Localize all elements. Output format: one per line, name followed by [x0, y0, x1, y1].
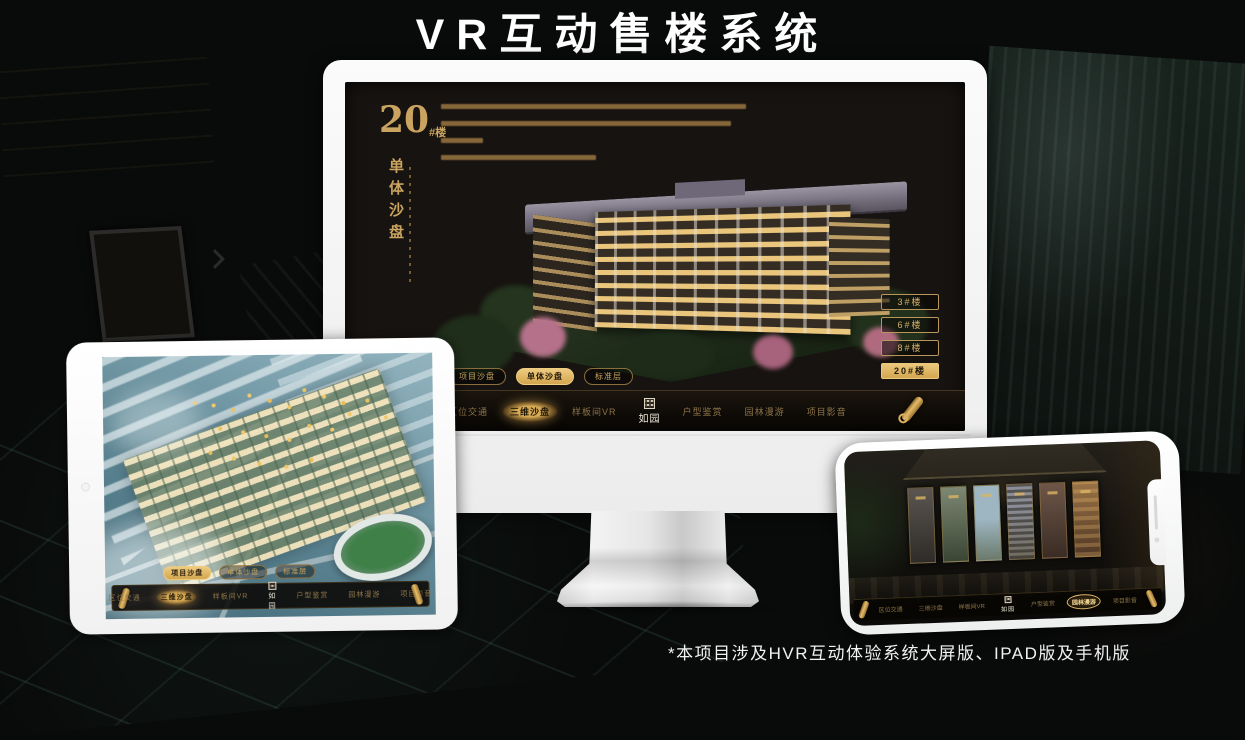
phone-speaker-icon	[1154, 495, 1158, 529]
tab-standard-floor[interactable]: 标准层	[584, 368, 633, 385]
building-3d-render[interactable]	[425, 167, 915, 387]
nav-item-project-media[interactable]: 项目影音	[1109, 593, 1141, 607]
seal-icon	[644, 398, 655, 409]
heading-subtitle-vertical: 单体沙盘	[385, 158, 406, 246]
gallery-panel-courtyard[interactable]	[907, 487, 936, 564]
tab-project-sandtable[interactable]: 项目沙盘	[448, 368, 506, 385]
page-title: VR互动售楼系统	[0, 0, 1245, 62]
brand-logo-text: 如园	[268, 590, 276, 610]
nav-item-garden-roam[interactable]: 园林漫游	[738, 401, 792, 422]
brand-logo: 如园	[268, 581, 276, 610]
tree	[623, 332, 715, 378]
intro-line	[441, 138, 483, 143]
tab-project-sandtable-active[interactable]: 项目沙盘	[163, 566, 211, 581]
pink-blossom-tree	[520, 317, 566, 357]
tablet-navbar: 区位交通 三维沙盘 样板间VR 如园 户型鉴赏 园林漫游 项目影音	[111, 581, 429, 611]
tablet-device: 项目沙盘 单体沙盘 标准层 区位交通 三维沙盘 样板间VR 如园 户型鉴赏 园林…	[66, 337, 458, 634]
nav-item-unit-appreciation[interactable]: 户型鉴赏	[292, 587, 332, 604]
gallery-panel-sky-view[interactable]	[973, 484, 1002, 561]
tablet-screen: 项目沙盘 单体沙盘 标准层 区位交通 三维沙盘 样板间VR 如园 户型鉴赏 园林…	[102, 353, 436, 620]
floor-button-group: 3#楼 6#楼 8#楼 20#楼	[881, 294, 939, 386]
background-picture-frame	[89, 226, 195, 342]
gallery-panel-garden[interactable]	[940, 486, 969, 563]
background-render-collage	[961, 46, 1245, 475]
tab-standard-floor[interactable]: 标准层	[275, 564, 315, 579]
gallery-panel-interior[interactable]	[1039, 482, 1068, 559]
phone-notch	[1147, 479, 1166, 566]
brand-logo: 如园	[639, 398, 661, 425]
floor-button-6[interactable]: 6#楼	[881, 317, 939, 333]
intro-line	[441, 155, 596, 160]
nav-item-garden-roam-active[interactable]: 园林漫游	[1067, 594, 1102, 610]
floor-button-3[interactable]: 3#楼	[881, 294, 939, 310]
phone-device: 区位交通 三维沙盘 样板间VR 如园 户型鉴赏 园林漫游 项目影音	[834, 430, 1185, 635]
monitor-stand-shadow	[520, 601, 800, 617]
building-number-heading: 20	[379, 102, 429, 138]
gallery-panel-building[interactable]	[1006, 483, 1035, 560]
heading-dotted-divider	[409, 162, 411, 282]
floor-button-20-active[interactable]: 20#楼	[881, 363, 939, 379]
tablet-camera-icon	[81, 482, 90, 491]
phone-camera-icon	[1154, 537, 1159, 542]
footnote-text: *本项目涉及HVR互动体验系统大屏版、IPAD版及手机版	[668, 639, 1131, 664]
nav-item-garden-roam[interactable]: 园林漫游	[344, 586, 384, 603]
scroll-roll	[900, 395, 924, 423]
building-left-face	[533, 215, 597, 332]
monitor-sub-tabs: 项目沙盘 单体沙盘 标准层	[448, 368, 633, 385]
intro-line	[441, 104, 746, 109]
nav-item-showroom-vr[interactable]: 样板间VR	[565, 401, 624, 422]
nav-item-location-traffic[interactable]: 区位交通	[874, 602, 906, 616]
scroll-icon-left[interactable]	[858, 600, 870, 619]
nav-item-3d-sandtable[interactable]: 三维沙盘	[914, 600, 946, 614]
brand-logo-text: 如园	[639, 410, 661, 425]
pink-blossom-tree	[753, 335, 793, 369]
scroll-icon-right[interactable]	[1145, 589, 1158, 608]
tab-single-sandtable[interactable]: 单体沙盘	[219, 565, 267, 580]
monitor-stand	[557, 511, 759, 607]
floor-button-8[interactable]: 8#楼	[881, 340, 939, 356]
scroll-icon[interactable]	[901, 395, 923, 427]
seal-icon	[1004, 596, 1011, 603]
building-front-face	[595, 204, 851, 334]
nav-item-unit-appreciation[interactable]: 户型鉴赏	[1027, 596, 1059, 610]
nav-item-showroom-vr[interactable]: 样板间VR	[954, 599, 989, 613]
gallery-panel-shelves[interactable]	[1072, 481, 1101, 558]
tablet-sub-tabs: 项目沙盘 单体沙盘 标准层	[163, 564, 315, 580]
nav-item-location-traffic[interactable]: 区位交通	[105, 590, 145, 607]
nav-item-project-media[interactable]: 项目影音	[800, 401, 854, 422]
nav-item-3d-sandtable-active[interactable]: 三维沙盘	[503, 401, 557, 422]
tab-single-sandtable-active[interactable]: 单体沙盘	[516, 368, 574, 385]
nav-item-unit-appreciation[interactable]: 户型鉴赏	[676, 401, 730, 422]
brand-logo: 如园	[1001, 596, 1016, 614]
intro-line	[441, 121, 731, 126]
gallery-panels	[907, 481, 1101, 564]
brand-logo-text: 如园	[1001, 604, 1015, 614]
seal-icon	[268, 581, 276, 589]
nav-item-showroom-vr[interactable]: 样板间VR	[209, 588, 253, 605]
chevron-right-icon	[205, 249, 225, 269]
intro-paragraph-blurred	[441, 104, 746, 172]
phone-screen: 区位交通 三维沙盘 样板间VR 如园 户型鉴赏 园林漫游 项目影音	[844, 440, 1166, 626]
nav-item-3d-sandtable-active[interactable]: 三维沙盘	[157, 589, 197, 606]
